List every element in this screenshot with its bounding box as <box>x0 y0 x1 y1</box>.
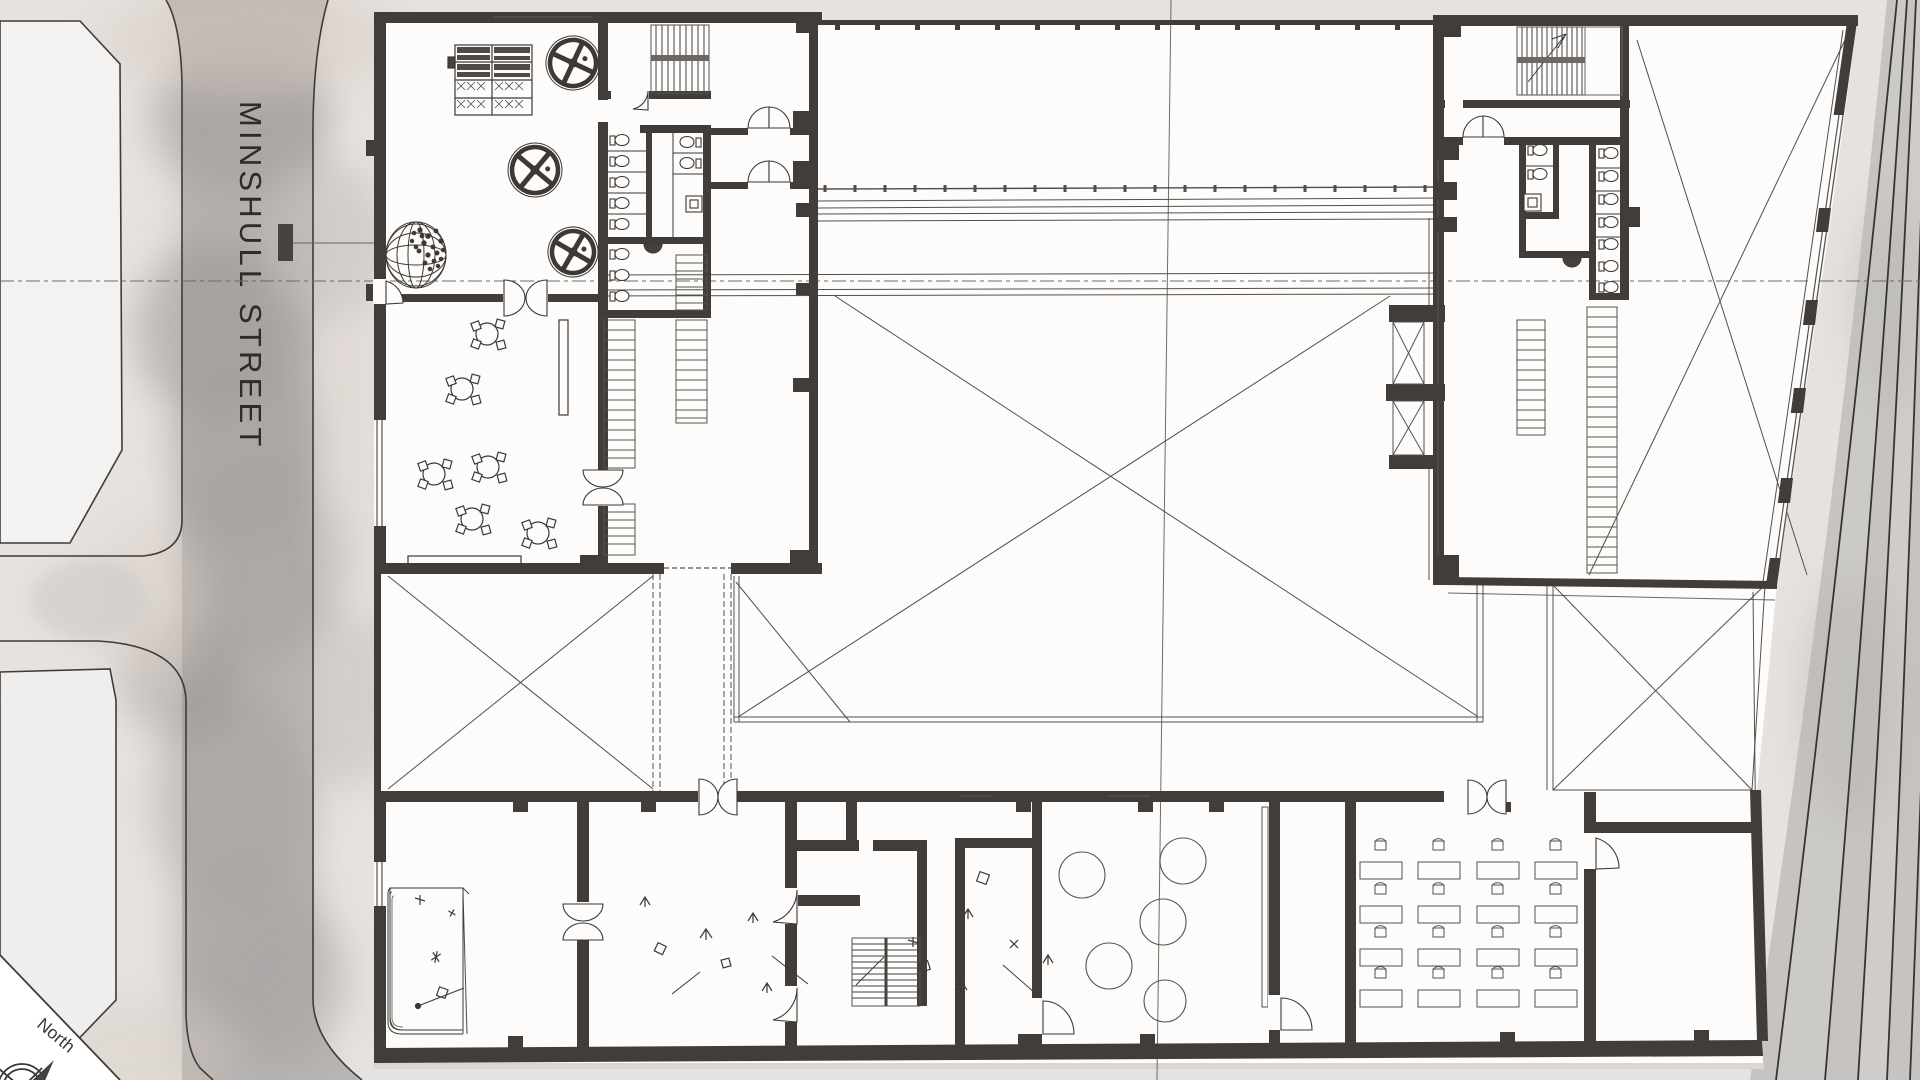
svg-text:MINSHULL STREET: MINSHULL STREET <box>233 101 268 451</box>
